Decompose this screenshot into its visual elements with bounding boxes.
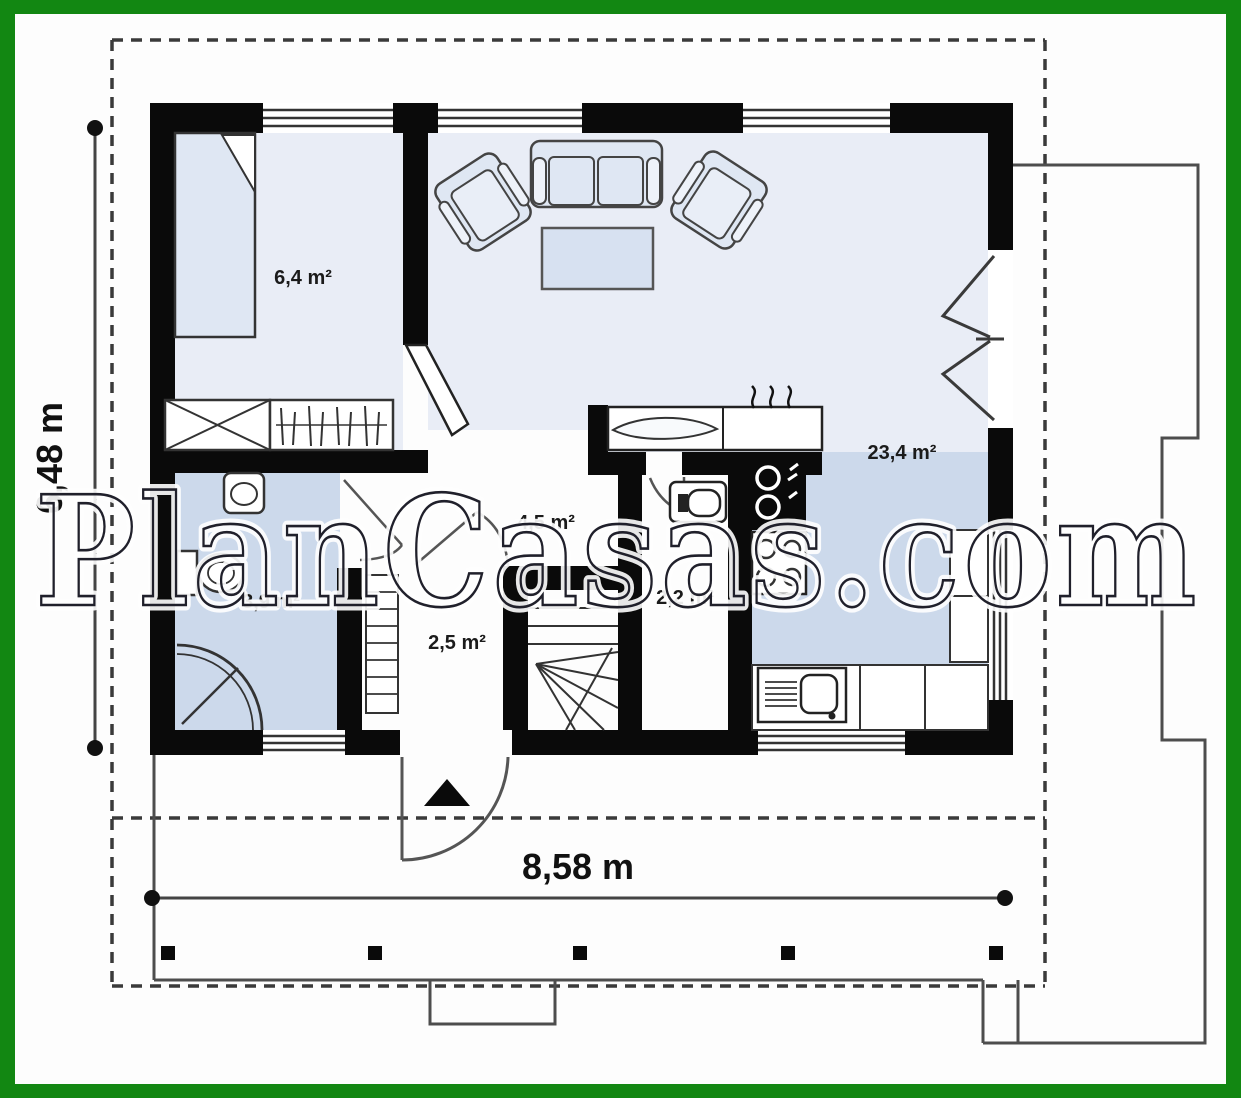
bedroom-window [263, 103, 393, 133]
porch-post [573, 946, 587, 960]
kitchen-peninsula-counter [608, 407, 822, 450]
coffee-table [542, 228, 653, 289]
watermark-text: PlanCasas.com [35, 462, 1200, 641]
porch-post [989, 946, 1003, 960]
width-dimension-label: 8,58 m [522, 846, 634, 887]
dimension-dot [144, 890, 160, 906]
living-window-2 [743, 103, 890, 133]
dimension-dot [87, 740, 103, 756]
dimension-dot [997, 890, 1013, 906]
living-window-1 [438, 103, 582, 133]
sofa [531, 141, 662, 207]
watermark: PlanCasas.com PlanCasas.com [35, 462, 1200, 641]
wardrobe [165, 400, 393, 450]
kitchen-sink [758, 668, 846, 722]
kitchen-window [758, 730, 905, 755]
porch-post [781, 946, 795, 960]
bedroom-area-label: 6,4 m² [274, 267, 332, 289]
floor-plan-svg: 6,4 m² 23,4 m² 4,5 m² 3,9 m² 2,5 m² 2,2 … [0, 0, 1241, 1098]
living-area-label: 23,4 m² [868, 442, 937, 464]
floor-plan-page: 6,4 m² 23,4 m² 4,5 m² 3,9 m² 2,5 m² 2,2 … [0, 0, 1241, 1098]
dimension-dot [87, 120, 103, 136]
porch-post [368, 946, 382, 960]
porch-post [161, 946, 175, 960]
bathroom-window [263, 730, 345, 755]
